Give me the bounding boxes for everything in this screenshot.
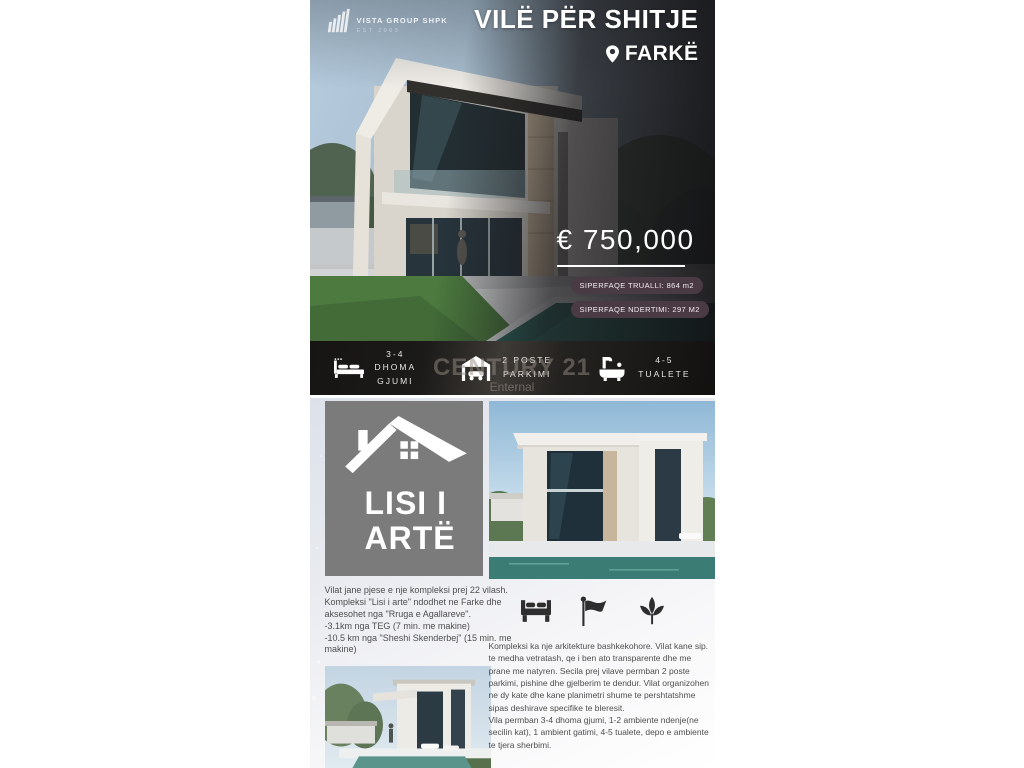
bed-icon <box>334 356 364 381</box>
project-name: LISI I ARTË <box>349 486 483 556</box>
project-description: Kompleksi ka nje arkitekture bashkekohor… <box>489 640 711 751</box>
bathtub-icon <box>597 356 627 381</box>
vista-group-logo-icon <box>326 7 352 35</box>
details-left-column: LISI I ARTË Vilat jane pjese e nje kompl… <box>325 401 483 768</box>
garage-icon <box>461 356 491 381</box>
distance-teg: -3.1km nga TEG (7 min. me makine) <box>325 621 513 633</box>
agency-logo-text: VISTA GROUP SHPK EST 2003 <box>357 7 448 34</box>
intro-paragraph: Vilat jane pjese e nje kompleksi prej 22… <box>325 585 513 621</box>
agency-name: VISTA GROUP SHPK <box>357 16 448 25</box>
feature-bathrooms-label: 4-5 TUALETE <box>638 354 690 381</box>
hero-title-block: VILË PËR SHITJE FARKË <box>474 4 698 66</box>
flyer-page: VISTA GROUP SHPK EST 2003 VILË PËR SHITJ… <box>0 0 1024 768</box>
agency-est: EST 2003 <box>357 28 448 34</box>
description-paragraph-2: Vila permban 3-4 dhoma gjumi, 1-2 ambien… <box>489 714 711 751</box>
description-paragraph-1: Kompleksi ka nje arkitekture bashkekohor… <box>489 640 711 714</box>
location-name: FARKË <box>625 42 699 66</box>
feature-bathrooms: 4-5 TUALETE <box>597 354 690 381</box>
price: € 750,000 <box>557 224 699 256</box>
price-block: € 750,000 SIPERFAQE TRUALLI: 864 m2 SIPE… <box>557 224 699 318</box>
price-divider <box>557 265 685 267</box>
feature-parking: 2 POSTE PARKIMI <box>461 354 552 381</box>
feature-parking-label: 2 POSTE PARKIMI <box>502 354 552 381</box>
flag-icon <box>579 596 609 626</box>
flyer-column: VISTA GROUP SHPK EST 2003 VILË PËR SHITJ… <box>310 0 715 768</box>
details-right-column: Kompleksi ka nje arkitekture bashkekohor… <box>489 401 715 768</box>
agency-logo: VISTA GROUP SHPK EST 2003 <box>326 7 448 35</box>
land-area-badge: SIPERFAQE TRUALLI: 864 m2 <box>571 277 704 294</box>
details-section: LISI I ARTË Vilat jane pjese e nje kompl… <box>310 398 715 768</box>
hero-section: VISTA GROUP SHPK EST 2003 VILË PËR SHITJ… <box>310 0 715 341</box>
project-logo-box: LISI I ARTË <box>325 401 483 576</box>
listing-title: VILË PËR SHITJE <box>474 4 698 35</box>
distance-skenderbej: -10.5 km nga "Sheshi Skenderbej" (15 min… <box>325 633 513 657</box>
villa-photo-large <box>489 401 715 579</box>
feature-bedrooms: 3-4 DHOMA GJUMI <box>334 348 417 389</box>
location-row: FARKË <box>474 42 698 66</box>
amenity-icons-row <box>489 579 715 640</box>
built-area-badge: SIPERFAQE NDERTIMI: 297 M2 <box>571 301 709 318</box>
project-intro-text: Vilat jane pjese e nje kompleksi prej 22… <box>325 585 513 656</box>
house-roof-icon <box>345 416 467 474</box>
feature-bedrooms-label: 3-4 DHOMA GJUMI <box>375 348 417 389</box>
features-bar: 3-4 DHOMA GJUMI 2 POSTE PARKIMI <box>310 341 715 395</box>
villa-photo-small <box>325 666 491 768</box>
location-pin-icon <box>606 45 619 63</box>
bed-icon <box>521 596 551 626</box>
leaf-icon <box>637 596 667 626</box>
